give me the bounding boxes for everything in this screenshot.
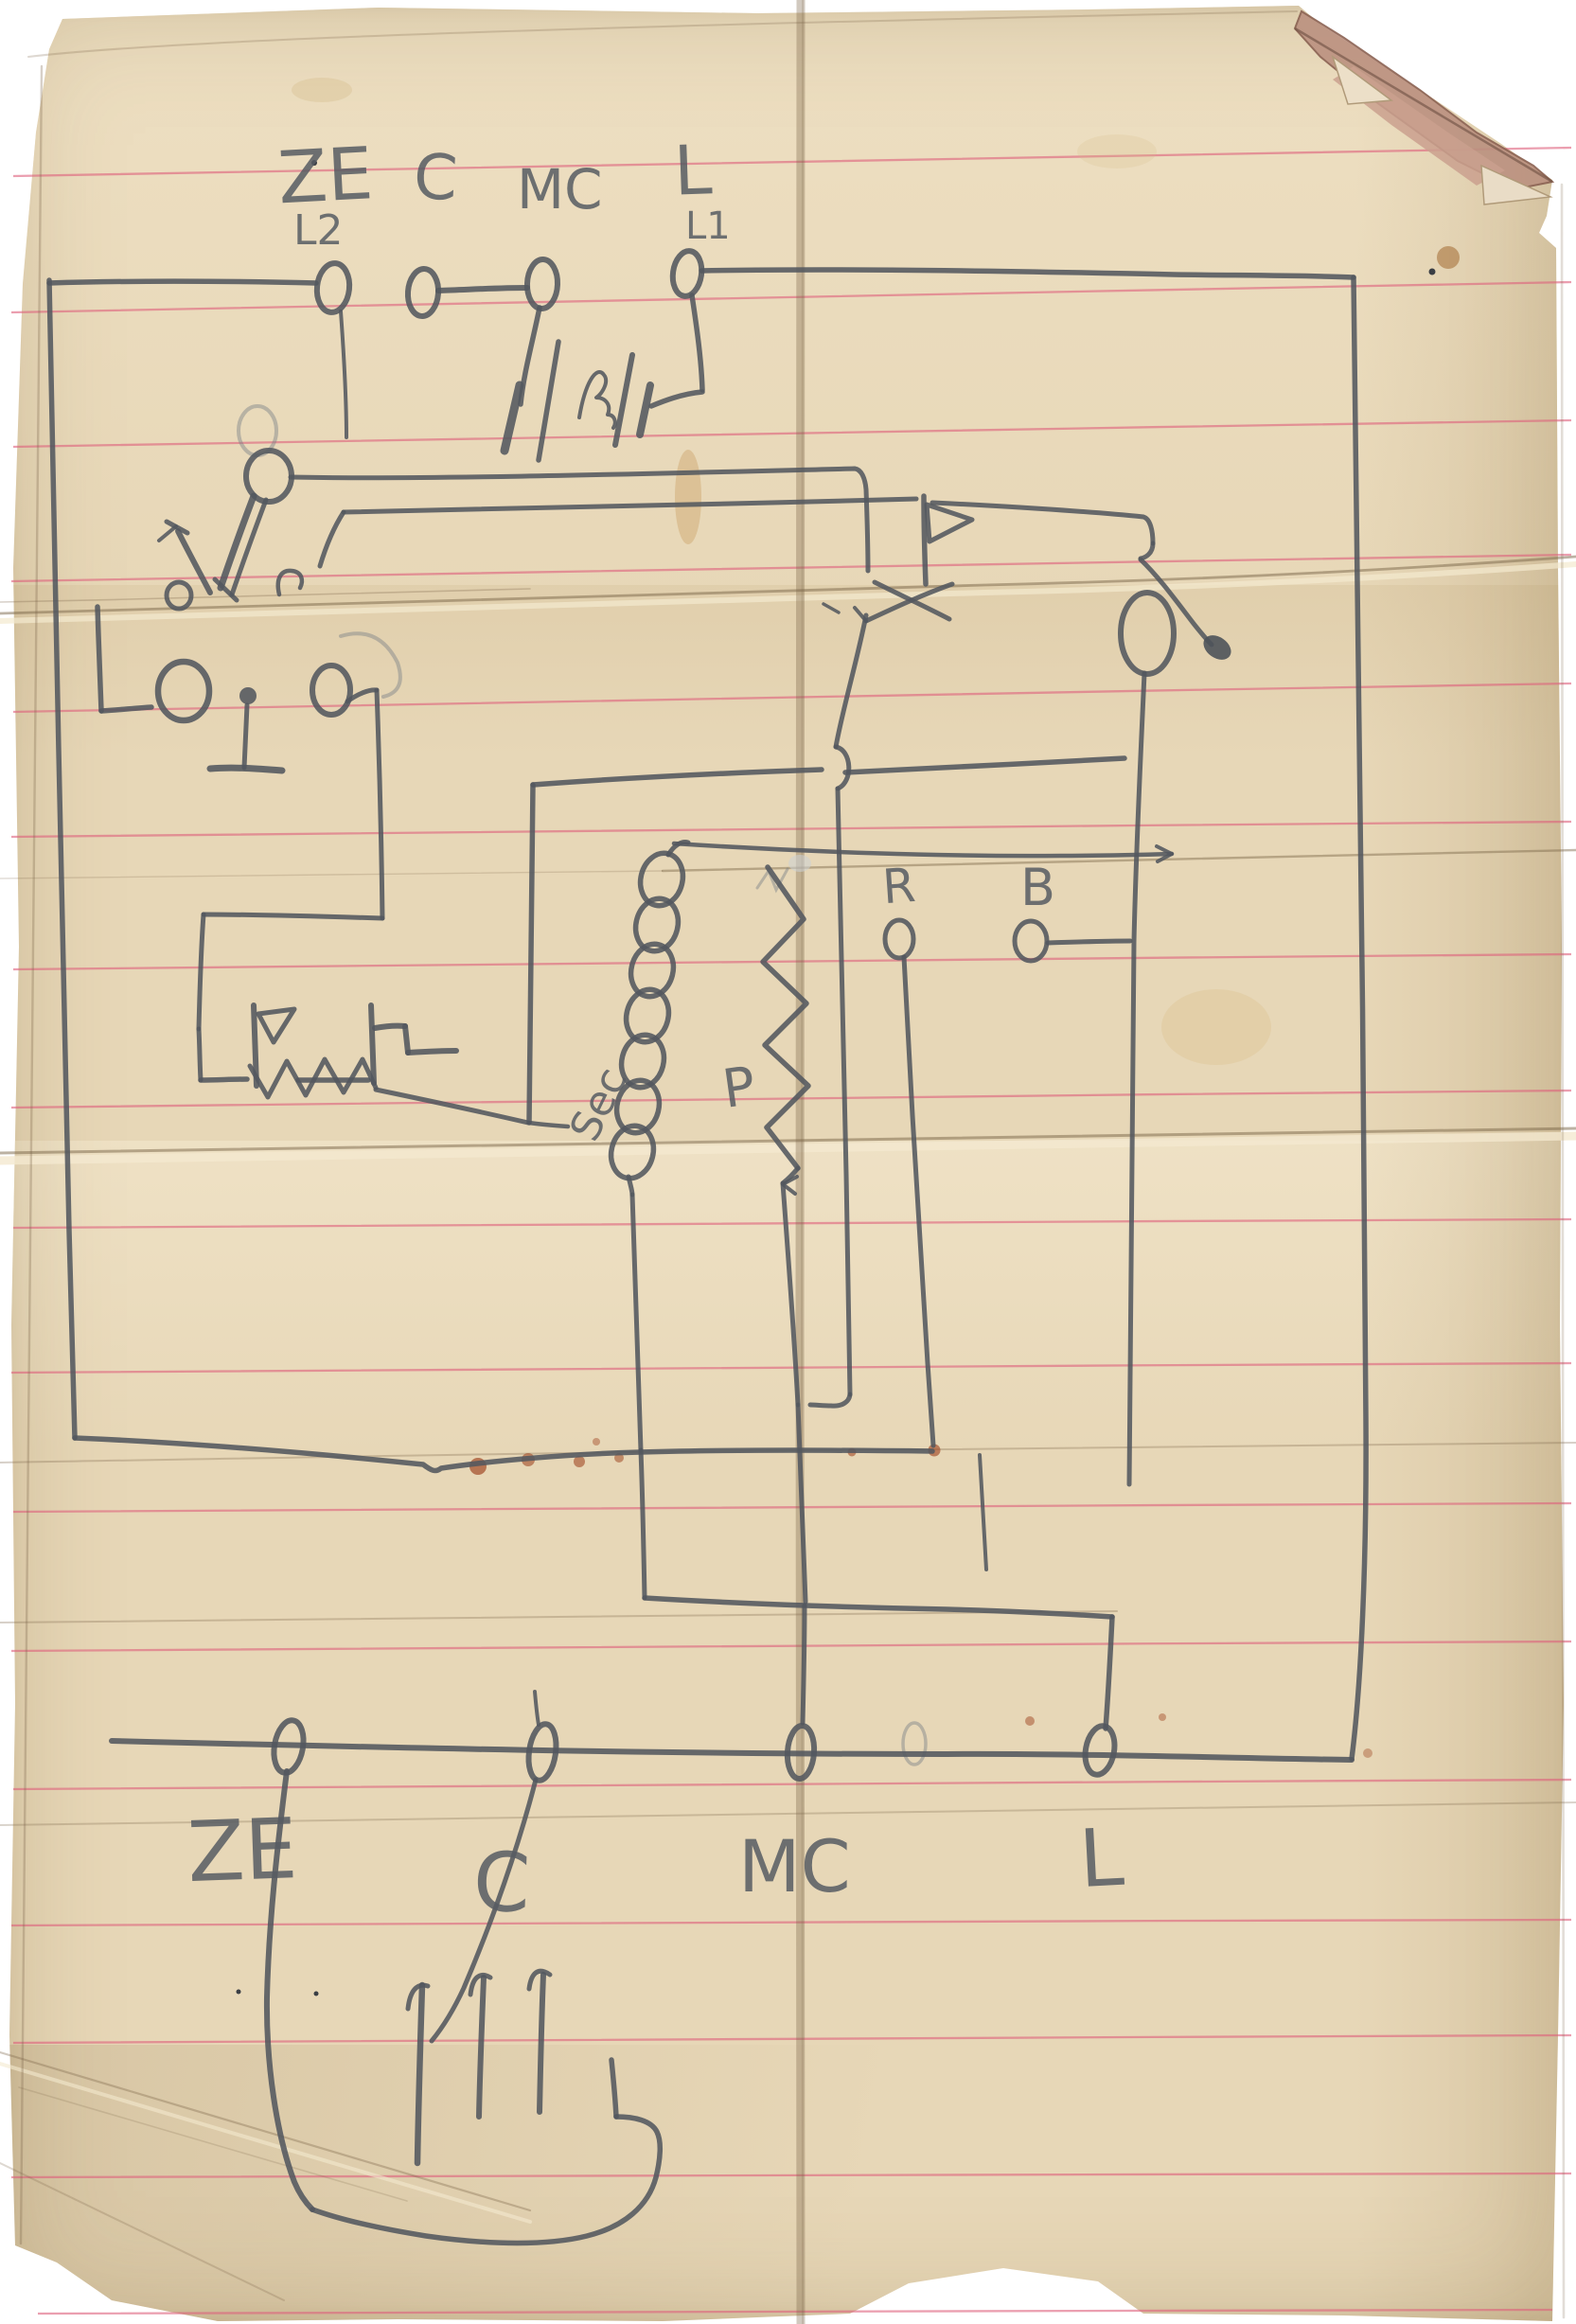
inner-box-top-b [845, 758, 1124, 772]
wire-c-to-mc [438, 288, 527, 291]
wire-right-long-vertical [1129, 673, 1144, 1484]
handwritten-labels: ZE L2 C MC L L1 R B P Sec ZE C MC L [186, 130, 1125, 1931]
terminal-top-ze-stub [341, 311, 346, 437]
wire-coil-tail2 [641, 1450, 645, 1598]
terminal-b [1015, 921, 1047, 961]
terminal-bottom-c-stub [535, 1692, 539, 1725]
torn-corner-flap [1295, 11, 1552, 204]
flag-diode-triangle [927, 505, 972, 541]
wire-b-right [1048, 941, 1130, 943]
battery-top [505, 342, 702, 460]
label-r: R [880, 858, 917, 914]
jack-terminals [97, 607, 377, 771]
stain-streak [675, 450, 701, 544]
wire-hop-loop [836, 747, 849, 789]
terminal-right-large [1121, 593, 1174, 674]
label-b: B [1020, 858, 1055, 917]
label-bottom-c: C [471, 1835, 532, 1931]
label-top-l1: L1 [685, 204, 731, 248]
knife-switch [159, 451, 302, 609]
label-top-l: L [673, 130, 714, 210]
wire-r-down [904, 957, 933, 1446]
terminal-bottom-l [1082, 1724, 1119, 1777]
label-bottom-l: L [1077, 1811, 1126, 1906]
wire-blob-hook [1141, 543, 1153, 559]
wire-mc-down [521, 308, 540, 404]
label-top-mc: MC [517, 157, 603, 222]
wire-lower-bus-corner [1106, 1617, 1112, 1729]
wire-jack-down2 [199, 914, 204, 1029]
stain-blotch-right [1161, 989, 1271, 1065]
wire-hop-hook [810, 1394, 850, 1406]
wire-jack-down [377, 690, 382, 918]
outer-box-left-edge [49, 280, 75, 1438]
wire-switch-upper [291, 469, 868, 571]
wire-mc-branch [803, 1606, 805, 1723]
stains [237, 78, 1461, 1996]
terminal-top-l [670, 249, 704, 298]
wire-switch-lower-tail [320, 512, 344, 566]
schematic-drawing: ZE L2 C MC L L1 R B P Sec ZE C MC L [0, 0, 1576, 2324]
inner-box-top-a [533, 770, 822, 785]
label-bottom-ze: ZE [186, 1800, 298, 1901]
stain-top-right [1077, 134, 1157, 169]
wire-faint-center [980, 1455, 986, 1570]
tape-blob [788, 855, 811, 872]
wire-coil-tail [632, 1195, 641, 1450]
stain-top [292, 78, 352, 102]
label-top-l2: L2 [293, 206, 344, 255]
label-top-c: C [412, 140, 459, 215]
wire-hop-vertical [836, 615, 866, 747]
circuit-pencil-work [49, 249, 1366, 2243]
wire-l-down [692, 295, 702, 390]
wire-hop-down [838, 789, 850, 1394]
outer-box-top-left-wire [49, 281, 316, 283]
scanned-page: ZE L2 C MC L L1 R B P Sec ZE C MC L [0, 0, 1576, 2324]
inner-box-left-edge [529, 785, 533, 1123]
rust-spots [469, 1438, 1372, 1758]
paper-creases [0, 0, 1576, 2324]
outer-box-right-edge [1352, 277, 1366, 1759]
ink-specks [237, 160, 1436, 1996]
label-bottom-mc: MC [738, 1824, 851, 1908]
stain-dot-right-edge [1437, 246, 1460, 269]
wire-coil-top [674, 843, 1172, 856]
wire-jack-across [204, 914, 382, 918]
terminal-r [885, 920, 913, 958]
wire-switch-lower [344, 499, 916, 512]
battery-bottom [312, 1971, 660, 2243]
label-p: P [719, 1056, 759, 1121]
terminal-top-c [406, 268, 439, 317]
